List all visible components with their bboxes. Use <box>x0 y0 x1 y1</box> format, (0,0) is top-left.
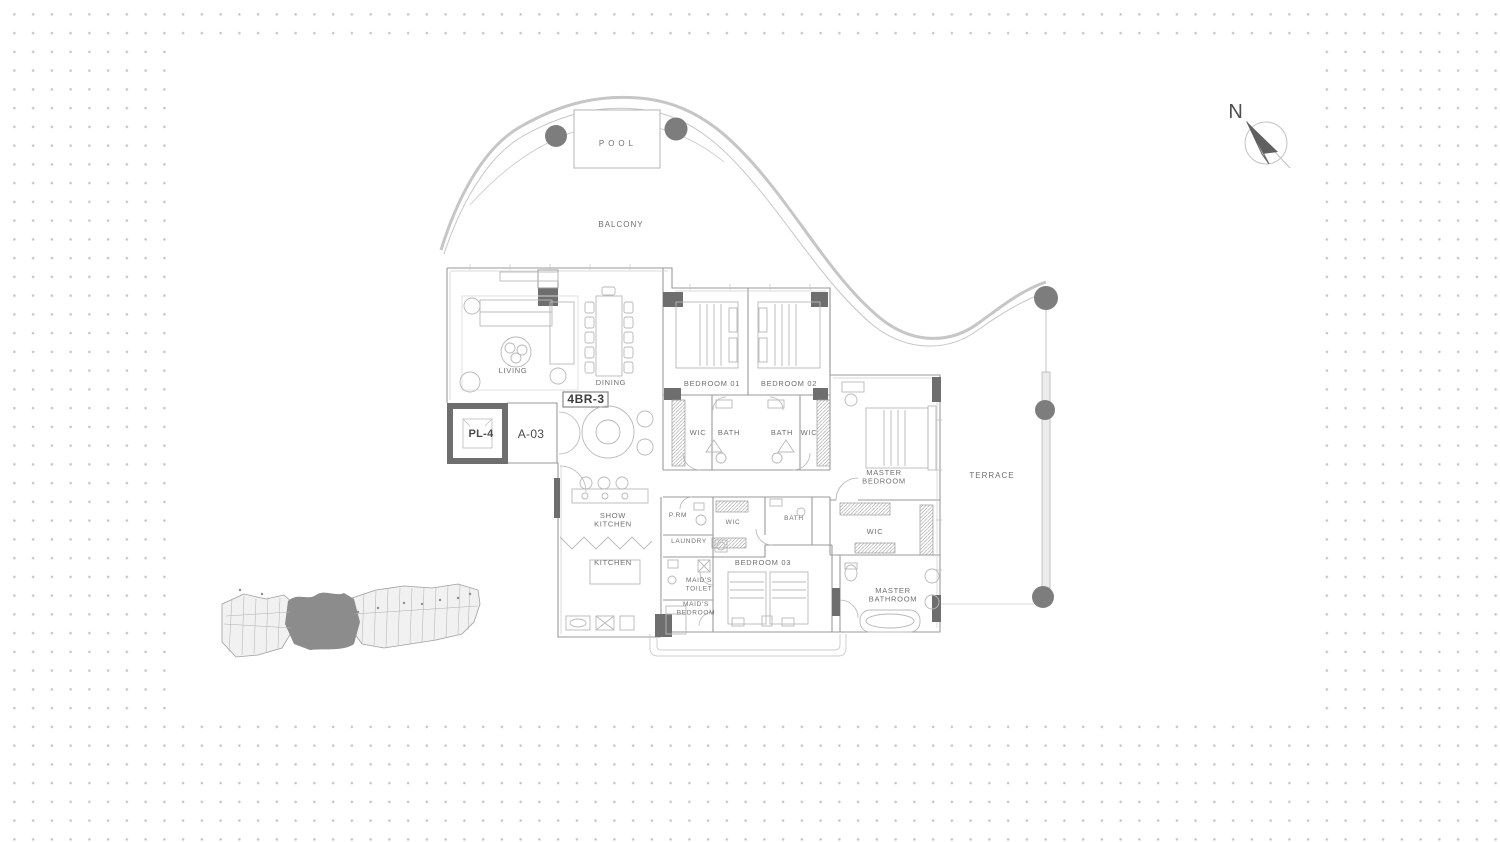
floor-plan-page: { "colors": { "dot": "#c5c5c5", "wall": … <box>0 0 1500 842</box>
key-plan-highlighted-unit <box>285 593 360 650</box>
label-master-bedroom: MASTERBEDROOM <box>862 468 906 486</box>
label-terrace: TERRACE <box>969 471 1014 480</box>
compass <box>1245 121 1290 168</box>
column <box>1034 286 1058 310</box>
label-laundry: LAUNDRY <box>671 538 707 545</box>
unit-walls <box>447 264 942 656</box>
label-bedroom-03: BEDROOM 03 <box>735 558 791 567</box>
label-kitchen: KITCHEN <box>594 558 632 567</box>
balcony-outline <box>441 97 1046 346</box>
label-lift: PL-4 <box>468 428 494 440</box>
label-balcony: BALCONY <box>598 220 643 229</box>
label-dining: DINING <box>596 378 626 387</box>
label-maids-toilet: MAID'STOILET <box>686 577 713 593</box>
label-wic-bedroom-02: WIC <box>801 428 818 437</box>
label-pool: POOL <box>599 139 637 148</box>
wall-dark-segments <box>538 288 941 637</box>
column <box>1032 586 1054 608</box>
room-labels: POOLBALCONYLIVINGDINING4BR-3PL-4A-03BEDR… <box>468 101 1243 617</box>
label-bath-bedroom-02: BATH <box>771 428 793 437</box>
label-bath-bedroom-03: BATH <box>784 515 804 522</box>
compass-needle-icon <box>1247 122 1278 154</box>
key-plan[interactable] <box>222 584 480 657</box>
label-master-bathroom: MASTERBATHROOM <box>869 586 917 604</box>
label-bedroom-02: BEDROOM 02 <box>761 379 817 388</box>
label-bath-bedroom-01: BATH <box>718 428 740 437</box>
label-wic-master: WIC <box>867 527 884 536</box>
label-wic-bedroom-01: WIC <box>690 428 707 437</box>
label-unit-type: 4BR-3 <box>567 392 604 406</box>
floor-plan-drawing: POOLBALCONYLIVINGDINING4BR-3PL-4A-03BEDR… <box>0 0 1500 842</box>
label-bedroom-01: BEDROOM 01 <box>684 379 740 388</box>
label-wic-corridor: WIC <box>726 519 741 526</box>
column <box>665 118 688 141</box>
label-powder-room: P.RM <box>669 512 687 519</box>
terrace-edge <box>940 298 1050 604</box>
label-maids-bedroom: MAID'SBEDROOM <box>677 601 716 617</box>
column <box>1035 400 1055 420</box>
label-living: LIVING <box>499 366 528 375</box>
label-north: N <box>1228 101 1243 123</box>
label-show-kitchen: SHOWKITCHEN <box>594 511 632 529</box>
column <box>545 125 567 147</box>
label-unit-number: A-03 <box>518 427 545 441</box>
column-box <box>538 270 558 288</box>
